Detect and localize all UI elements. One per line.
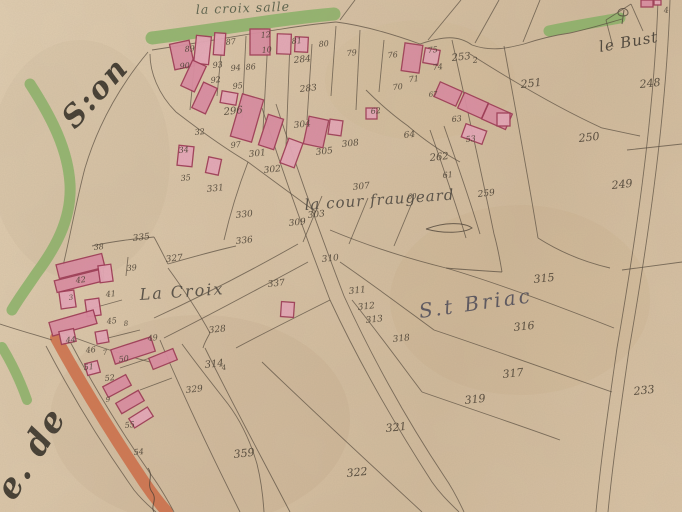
cadastral-map: 8990939294958712108681807976757471706762…: [0, 0, 682, 512]
paper-grain-overlay: [0, 0, 682, 512]
cadastral-map-page: 8990939294958712108681807976757471706762…: [0, 0, 682, 512]
